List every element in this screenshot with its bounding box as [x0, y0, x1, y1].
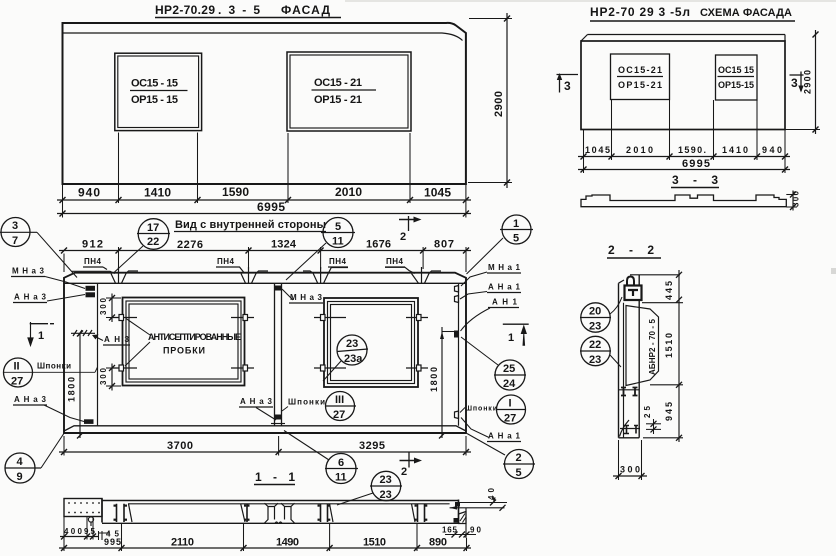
svg-text:2110: 2110 [171, 537, 194, 549]
svg-text:945: 945 [664, 402, 674, 421]
svg-text:1800: 1800 [67, 377, 77, 402]
svg-text:ОС15 - 15: ОС15 - 15 [131, 78, 178, 90]
svg-text:6995: 6995 [257, 200, 285, 214]
svg-text:АНТИСЕПТИРОВАННЫЕ: АНТИСЕПТИРОВАННЫЕ [148, 332, 241, 342]
svg-text:2900: 2900 [493, 91, 505, 117]
svg-text:АБНР2 - 70 - 5: АБНР2 - 70 - 5 [648, 318, 657, 375]
svg-text:22: 22 [147, 236, 159, 248]
svg-text:11: 11 [335, 472, 347, 484]
svg-text:3: 3 [791, 76, 798, 90]
svg-text:3: 3 [12, 220, 18, 232]
svg-text:ПН4: ПН4 [329, 257, 347, 266]
svg-text:300: 300 [792, 190, 801, 207]
svg-text:III: III [335, 394, 344, 406]
svg-text:9: 9 [17, 471, 23, 483]
svg-text:7: 7 [12, 235, 18, 247]
svg-text:23а: 23а [344, 353, 363, 365]
svg-text:940: 940 [78, 186, 100, 200]
svg-text:6: 6 [338, 457, 344, 469]
svg-text:ПН4: ПН4 [386, 257, 404, 266]
svg-text:2010: 2010 [335, 185, 362, 199]
svg-text:НР2-70.29: НР2-70.29 [155, 3, 215, 17]
svg-text:ОР15 - 15: ОР15 - 15 [131, 94, 178, 106]
svg-text:1: 1 [513, 218, 519, 230]
svg-text:Шпонки: Шпонки [288, 398, 325, 407]
svg-text:3700: 3700 [167, 440, 193, 452]
svg-text:995: 995 [104, 537, 121, 547]
svg-text:ПН4: ПН4 [217, 257, 235, 266]
svg-text:НР2-70 29 3 -5л: НР2-70 29 3 -5л [590, 5, 690, 19]
svg-text:27: 27 [504, 413, 516, 425]
svg-text:ПРОБКИ: ПРОБКИ [163, 346, 205, 356]
svg-text:ОР15-15: ОР15-15 [718, 80, 754, 90]
svg-text:АН1: АН1 [492, 298, 518, 307]
svg-text:300: 300 [620, 465, 640, 475]
svg-text:940: 940 [762, 145, 782, 155]
svg-text:ОС15 - 21: ОС15 - 21 [314, 77, 362, 89]
svg-text:Шпонки: Шпонки [37, 362, 71, 371]
svg-text:6995: 6995 [682, 158, 710, 170]
svg-text:300: 300 [99, 367, 108, 385]
svg-text:1676: 1676 [366, 239, 391, 251]
svg-text:27: 27 [11, 376, 23, 388]
svg-text:1: 1 [38, 330, 44, 342]
svg-text:ОР15-21: ОР15-21 [618, 80, 662, 90]
svg-text:2: 2 [400, 231, 406, 243]
svg-text:445: 445 [664, 281, 674, 300]
svg-text:24: 24 [503, 378, 516, 390]
svg-text:2276: 2276 [177, 239, 203, 251]
svg-text:23: 23 [589, 321, 601, 333]
svg-text:23: 23 [346, 338, 358, 350]
svg-text:. 3 - 5: . 3 - 5 [218, 3, 260, 17]
svg-text:22: 22 [589, 339, 601, 351]
svg-text:1490: 1490 [276, 537, 299, 549]
svg-text:ФАСАД: ФАСАД [281, 3, 331, 17]
svg-text:ОР15 - 21: ОР15 - 21 [314, 94, 362, 106]
svg-text:27: 27 [333, 409, 345, 421]
svg-text:11: 11 [332, 236, 344, 248]
svg-text:ПН4: ПН4 [84, 257, 102, 266]
svg-text:23: 23 [380, 489, 392, 501]
svg-text:II: II [14, 361, 20, 373]
svg-text:2900: 2900 [803, 70, 813, 94]
svg-text:25: 25 [503, 363, 515, 375]
svg-text:1324: 1324 [271, 239, 297, 251]
svg-text:400: 400 [64, 527, 83, 536]
svg-text:5: 5 [335, 221, 341, 233]
svg-text:3295: 3295 [359, 440, 385, 452]
svg-text:1410: 1410 [144, 186, 171, 200]
svg-text:I: I [509, 398, 512, 410]
svg-text:95: 95 [84, 527, 96, 536]
svg-text:23: 23 [380, 474, 392, 486]
svg-text:1045: 1045 [585, 145, 610, 155]
svg-text:4: 4 [17, 456, 24, 468]
svg-text:23: 23 [589, 354, 601, 366]
svg-text:1 - 1: 1 - 1 [255, 470, 295, 484]
svg-text:20: 20 [589, 306, 601, 318]
svg-text:1590.: 1590. [678, 145, 706, 155]
svg-text:2: 2 [516, 452, 522, 464]
svg-text:1410: 1410 [722, 145, 748, 155]
svg-text:5: 5 [516, 467, 522, 479]
svg-text:807: 807 [434, 239, 454, 251]
svg-text:90: 90 [470, 526, 482, 535]
svg-text:1: 1 [508, 332, 514, 344]
svg-text:2: 2 [401, 466, 407, 478]
svg-text:Вид с внутренней стороны: Вид с внутренней стороны [175, 219, 326, 231]
svg-text:5: 5 [513, 233, 519, 245]
svg-text:890: 890 [429, 537, 447, 549]
svg-text:3: 3 [564, 79, 571, 93]
svg-text:1510: 1510 [363, 537, 386, 549]
svg-text:ОС15 15: ОС15 15 [718, 65, 754, 75]
svg-text:Шпонки: Шпонки [465, 406, 497, 413]
svg-text:1590: 1590 [222, 185, 249, 199]
svg-text:912: 912 [82, 239, 103, 251]
svg-text:СХЕМА ФАСАДА: СХЕМА ФАСАДА [700, 7, 792, 19]
svg-text:1510: 1510 [664, 333, 674, 358]
svg-text:17: 17 [147, 222, 159, 234]
svg-text:300: 300 [99, 297, 108, 315]
svg-text:ОС15-21: ОС15-21 [618, 65, 662, 75]
svg-text:1800: 1800 [429, 367, 439, 392]
svg-text:1045: 1045 [424, 186, 451, 200]
